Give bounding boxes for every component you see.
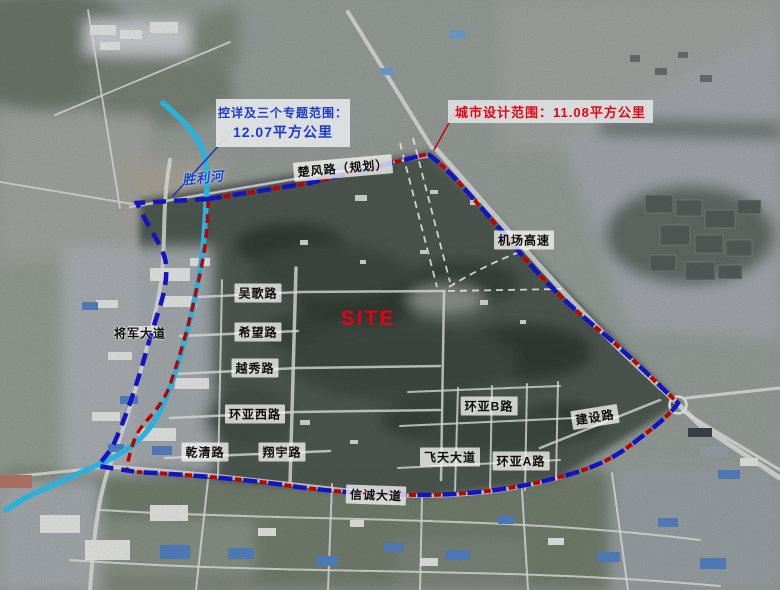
- road-label-huanya-b: 环亚B路: [461, 397, 518, 416]
- road-label-feitian: 飞天大道: [420, 448, 480, 467]
- callout-control-scope: 控详及三个专题范围： 12.07平方公里: [216, 99, 350, 147]
- road-label-xincheng: 信诚大道: [346, 484, 407, 505]
- road-label-xiwang: 希望路: [234, 323, 281, 342]
- road-label-jiangjun: 将军大道: [110, 324, 170, 343]
- road-label-xiangyu: 翔宇路: [258, 443, 305, 462]
- road-label-huanya-xi: 环亚西路: [225, 405, 285, 424]
- road-label-qianqing: 乾清路: [181, 443, 228, 462]
- callout-control-scope-line2: 12.07平方公里: [216, 122, 350, 143]
- road-label-jichang: 机场高速: [494, 231, 554, 250]
- satellite-planning-map: 楚风路（规划） 机场高速 吴歌路 希望路 越秀路 环亚西路 乾清路 翔宇路 将军…: [0, 0, 780, 590]
- road-label-huanya-a: 环亚A路: [493, 452, 550, 471]
- callout-control-scope-line1: 控详及三个专题范围：: [216, 104, 350, 122]
- site-label: SITE: [341, 307, 396, 331]
- callout-design-scope: 城市设计范围：11.08平方公里: [448, 100, 653, 123]
- road-label-yuexiu: 越秀路: [231, 359, 278, 378]
- road-label-wuge: 吴歌路: [234, 284, 281, 303]
